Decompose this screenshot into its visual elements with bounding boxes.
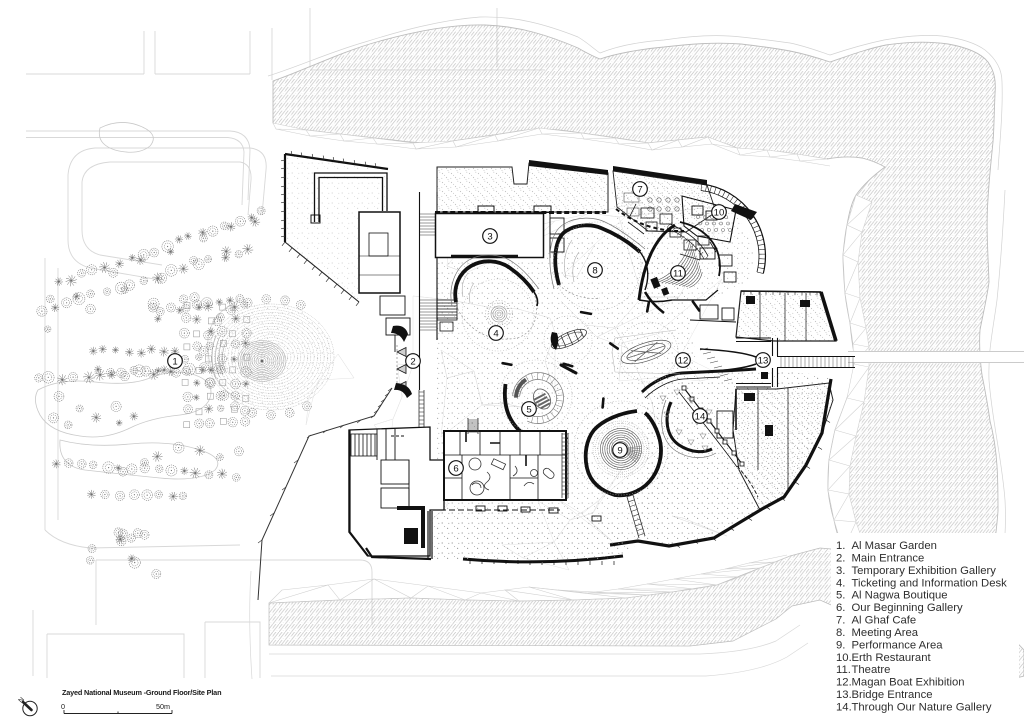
svg-text:6: 6 [453,463,458,474]
svg-text:13: 13 [758,355,769,366]
svg-text:Al Nagwa Boutique: Al Nagwa Boutique [852,590,948,602]
svg-text:2.: 2. [836,552,845,564]
svg-text:13.: 13. [836,689,852,701]
svg-text:4.: 4. [836,577,845,589]
svg-text:1: 1 [172,356,177,367]
svg-text:Ticketing and Information Desk: Ticketing and Information Desk [852,577,1008,589]
svg-text:50m: 50m [156,702,170,711]
svg-text:11.: 11. [836,664,851,676]
svg-text:14: 14 [695,411,706,422]
svg-text:10.: 10. [836,652,852,664]
svg-text:Through Our Nature Gallery: Through Our Nature Gallery [852,702,992,714]
svg-text:2: 2 [410,356,415,367]
svg-text:Temporary Exhibition Gallery: Temporary Exhibition Gallery [852,565,997,577]
svg-text:Meeting Area: Meeting Area [852,627,919,639]
svg-text:0: 0 [61,702,65,711]
svg-text:5.: 5. [836,590,845,602]
svg-text:Bridge Entrance: Bridge Entrance [852,689,933,701]
svg-text:8.: 8. [836,627,845,639]
svg-text:3: 3 [487,231,492,242]
svg-text:Theatre: Theatre [852,664,891,676]
svg-text:Al Ghaf Cafe: Al Ghaf Cafe [852,615,917,627]
svg-text:14.: 14. [836,702,852,714]
svg-text:7.: 7. [836,615,845,627]
svg-text:6.: 6. [836,602,845,614]
svg-text:4: 4 [493,328,499,339]
svg-text:Magan Boat Exhibition: Magan Boat Exhibition [852,677,965,689]
svg-text:Our Beginning Gallery: Our Beginning Gallery [852,602,963,614]
svg-text:9: 9 [617,445,622,456]
svg-text:10: 10 [714,207,725,218]
svg-text:Al Masar Garden: Al Masar Garden [852,540,937,552]
svg-text:11: 11 [673,268,683,279]
svg-text:12: 12 [678,355,689,366]
svg-text:12.: 12. [836,677,852,689]
svg-text:Erth Restaurant: Erth Restaurant [852,652,932,664]
svg-text:7: 7 [637,184,642,195]
svg-text:5: 5 [526,404,531,415]
svg-text:Zayed National Museum -Ground: Zayed National Museum -Ground Floor/Site… [62,688,221,697]
svg-text:Performance Area: Performance Area [852,639,944,651]
svg-text:9.: 9. [836,639,845,651]
svg-text:3.: 3. [836,565,845,577]
svg-text:8: 8 [592,265,597,276]
svg-text:1.: 1. [836,540,845,552]
svg-text:Main Entrance: Main Entrance [852,552,925,564]
